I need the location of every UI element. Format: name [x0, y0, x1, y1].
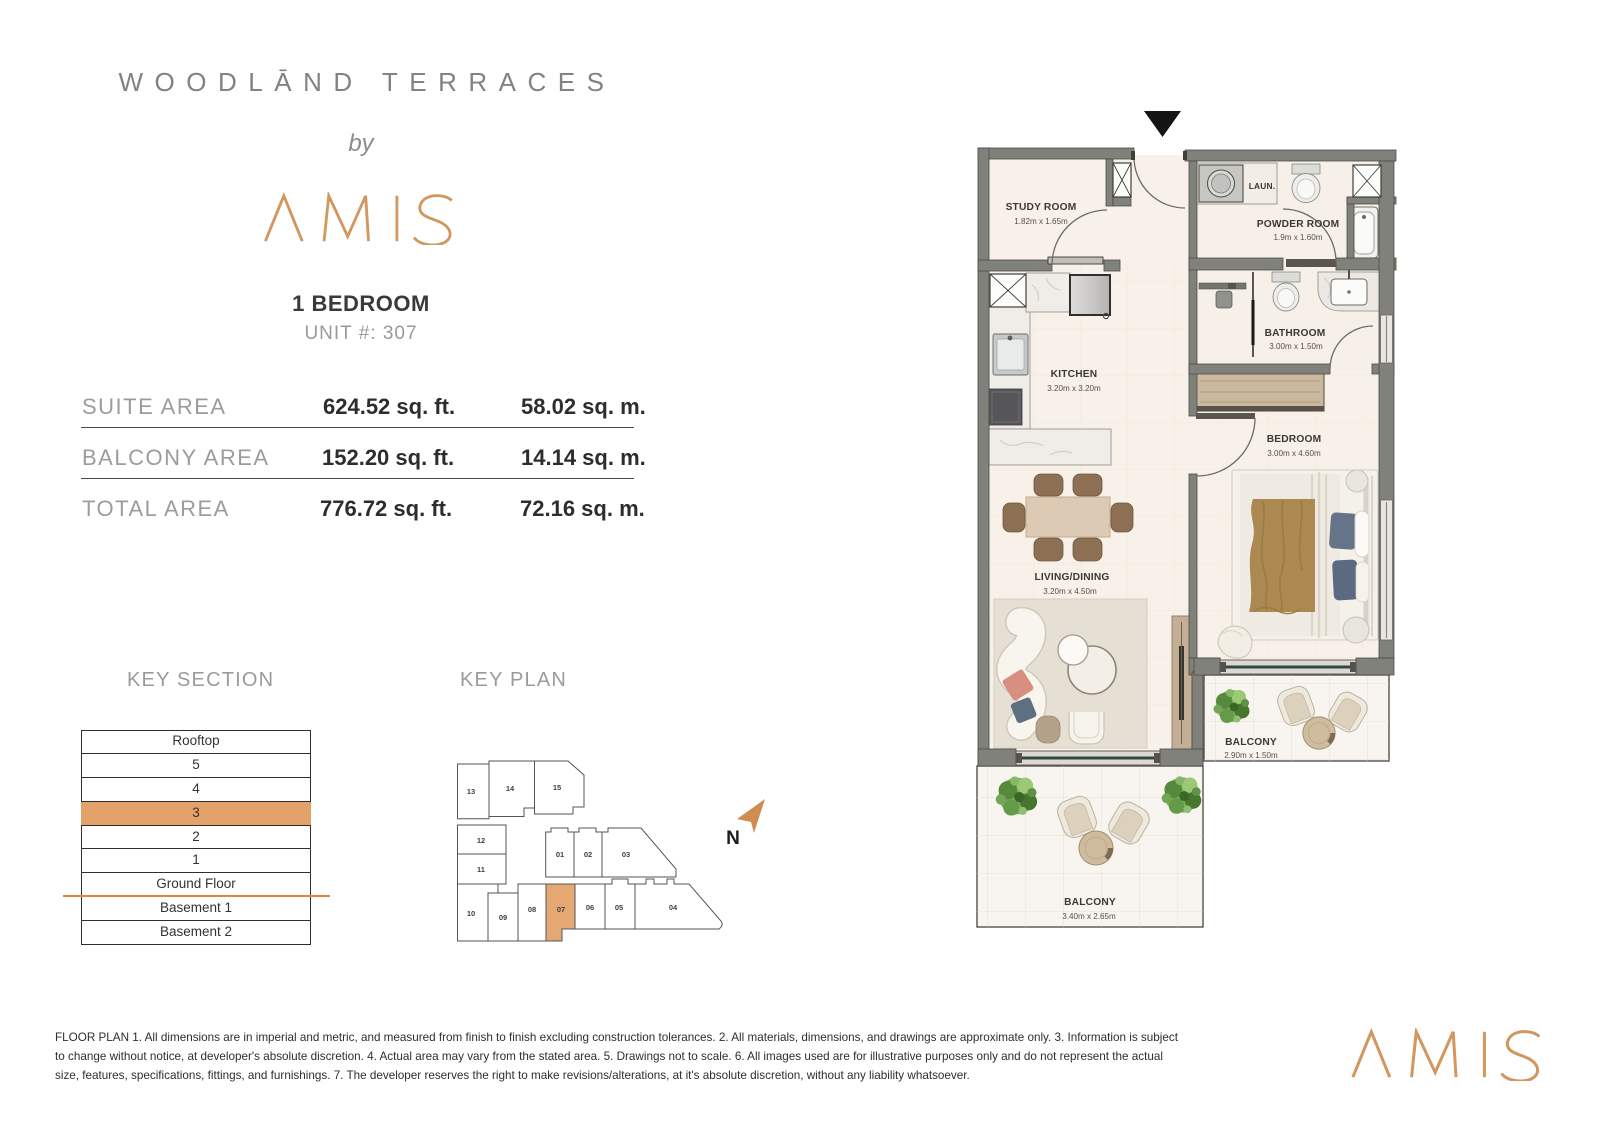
svg-text:08: 08 [528, 905, 536, 914]
svg-text:LIVING/DINING: LIVING/DINING [1034, 572, 1109, 583]
svg-text:01: 01 [556, 850, 564, 859]
svg-text:10: 10 [467, 909, 475, 918]
svg-text:LAUN.: LAUN. [1249, 181, 1276, 191]
svg-text:13: 13 [467, 787, 475, 796]
svg-text:07: 07 [557, 905, 565, 914]
svg-text:3.20m x 4.50m: 3.20m x 4.50m [1043, 587, 1097, 596]
svg-text:KITCHEN: KITCHEN [1051, 369, 1098, 380]
svg-text:POWDER ROOM: POWDER ROOM [1257, 219, 1340, 230]
svg-text:02: 02 [584, 850, 592, 859]
svg-text:N: N [726, 828, 740, 849]
svg-text:3.00m x 4.60m: 3.00m x 4.60m [1267, 449, 1321, 458]
svg-text:BEDROOM: BEDROOM [1267, 434, 1322, 445]
svg-text:12: 12 [477, 836, 485, 845]
svg-text:05: 05 [615, 903, 623, 912]
svg-text:3.40m x 2.65m: 3.40m x 2.65m [1062, 912, 1116, 921]
svg-text:STUDY ROOM: STUDY ROOM [1006, 202, 1077, 213]
svg-text:1.82m x 1.65m: 1.82m x 1.65m [1014, 217, 1068, 226]
svg-text:03: 03 [622, 850, 630, 859]
svg-text:15: 15 [553, 783, 561, 792]
svg-text:09: 09 [499, 913, 507, 922]
svg-text:11: 11 [477, 865, 485, 874]
svg-text:1.9m x 1.60m: 1.9m x 1.60m [1273, 233, 1322, 242]
svg-text:04: 04 [669, 903, 678, 912]
svg-text:14: 14 [506, 784, 515, 793]
svg-text:06: 06 [586, 903, 594, 912]
svg-text:3.20m x 3.20m: 3.20m x 3.20m [1047, 384, 1101, 393]
svg-text:3.00m x 1.50m: 3.00m x 1.50m [1269, 342, 1323, 351]
svg-text:BATHROOM: BATHROOM [1265, 328, 1326, 339]
svg-text:BALCONY: BALCONY [1064, 897, 1116, 908]
svg-text:BALCONY: BALCONY [1225, 737, 1277, 748]
svg-text:2.90m x 1.50m: 2.90m x 1.50m [1224, 751, 1278, 760]
